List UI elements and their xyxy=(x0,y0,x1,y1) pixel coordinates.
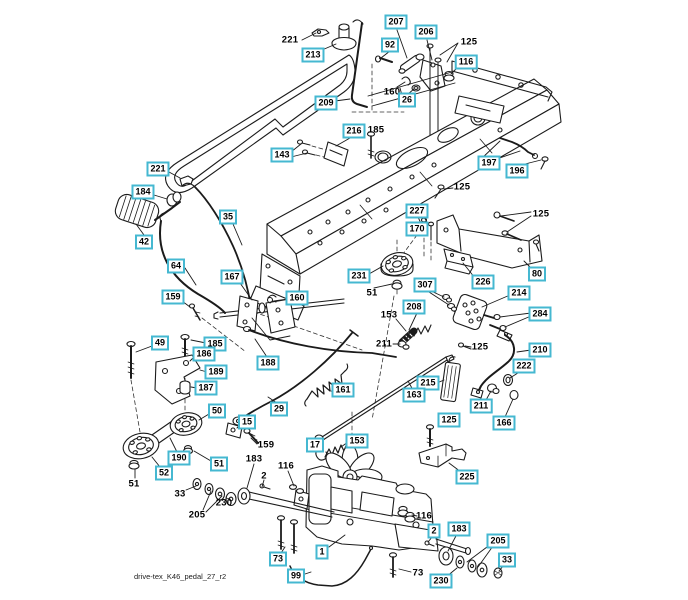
part-label-50[interactable]: 50 xyxy=(208,404,226,419)
part-label-159: 159 xyxy=(258,440,274,450)
part-label-208[interactable]: 208 xyxy=(402,300,425,315)
part-label-186[interactable]: 186 xyxy=(192,347,215,362)
part-label-92[interactable]: 92 xyxy=(381,38,399,53)
part-label-207[interactable]: 207 xyxy=(384,15,407,30)
part-label-184[interactable]: 184 xyxy=(131,185,154,200)
part-label-2: 2 xyxy=(261,471,266,481)
part-label-29[interactable]: 29 xyxy=(270,402,288,417)
part-label-222[interactable]: 222 xyxy=(512,359,535,374)
part-label-213[interactable]: 213 xyxy=(301,48,324,63)
part-label-163[interactable]: 163 xyxy=(402,388,425,403)
part-label-225[interactable]: 225 xyxy=(455,470,478,485)
part-label-185: 185 xyxy=(368,125,384,135)
part-label-227[interactable]: 227 xyxy=(405,204,428,219)
part-label-284[interactable]: 284 xyxy=(528,307,551,322)
part-label-125: 125 xyxy=(472,342,488,352)
part-label-51[interactable]: 51 xyxy=(210,457,228,472)
part-label-190[interactable]: 190 xyxy=(167,451,190,466)
part-label-221: 221 xyxy=(282,35,298,45)
part-label-33: 33 xyxy=(175,489,186,499)
part-label-26[interactable]: 26 xyxy=(398,93,416,108)
part-label-160[interactable]: 160 xyxy=(285,291,308,306)
part-label-1[interactable]: 1 xyxy=(315,545,328,560)
part-label-221[interactable]: 221 xyxy=(146,162,169,177)
part-label-80[interactable]: 80 xyxy=(528,267,546,282)
part-label-116[interactable]: 116 xyxy=(455,55,478,70)
part-label-167[interactable]: 167 xyxy=(220,270,243,285)
part-label-206[interactable]: 206 xyxy=(414,25,437,40)
part-label-116: 116 xyxy=(278,461,294,471)
part-label-196[interactable]: 196 xyxy=(505,164,528,179)
part-label-35[interactable]: 35 xyxy=(219,210,237,225)
part-label-42[interactable]: 42 xyxy=(135,235,153,250)
part-label-231[interactable]: 231 xyxy=(347,269,370,284)
part-label-161[interactable]: 161 xyxy=(331,383,354,398)
part-label-209[interactable]: 209 xyxy=(314,96,337,111)
part-label-205: 205 xyxy=(189,510,205,520)
part-label-170[interactable]: 170 xyxy=(405,222,428,237)
part-label-153[interactable]: 153 xyxy=(345,434,368,449)
part-label-125: 125 xyxy=(461,37,477,47)
part-label-159[interactable]: 159 xyxy=(161,290,184,305)
part-label-183[interactable]: 183 xyxy=(447,522,470,537)
part-label-99[interactable]: 99 xyxy=(287,569,305,584)
part-label-205[interactable]: 205 xyxy=(486,534,509,549)
part-label-52[interactable]: 52 xyxy=(155,466,173,481)
part-label-188[interactable]: 188 xyxy=(256,356,279,371)
part-label-51: 51 xyxy=(367,288,378,298)
part-label-197[interactable]: 197 xyxy=(477,156,500,171)
part-label-230[interactable]: 230 xyxy=(429,574,452,589)
part-label-187[interactable]: 187 xyxy=(194,381,217,396)
part-label-216[interactable]: 216 xyxy=(342,124,365,139)
part-label-2[interactable]: 2 xyxy=(427,524,440,539)
part-label-15[interactable]: 15 xyxy=(238,415,256,430)
part-label-64[interactable]: 64 xyxy=(167,259,185,274)
part-label-143[interactable]: 143 xyxy=(270,148,293,163)
part-label-183: 183 xyxy=(246,454,262,464)
part-label-210[interactable]: 210 xyxy=(528,343,551,358)
figure-footer: drive-tex_K46_pedal_27_r2 xyxy=(134,572,226,581)
part-label-211: 211 xyxy=(376,339,392,349)
part-label-125[interactable]: 125 xyxy=(437,413,460,428)
part-label-214[interactable]: 214 xyxy=(507,286,530,301)
part-label-73[interactable]: 73 xyxy=(269,552,287,567)
parts-diagram-page: 2212132072069212511616026209216185143197… xyxy=(0,0,688,600)
part-label-166[interactable]: 166 xyxy=(492,416,515,431)
part-label-230: 230 xyxy=(216,498,232,508)
part-label-125: 125 xyxy=(454,182,470,192)
part-label-226[interactable]: 226 xyxy=(471,275,494,290)
part-label-51: 51 xyxy=(129,479,140,489)
part-label-211[interactable]: 211 xyxy=(470,399,493,414)
part-label-73: 73 xyxy=(413,568,424,578)
part-label-17[interactable]: 17 xyxy=(306,438,324,453)
part-label-307[interactable]: 307 xyxy=(413,278,436,293)
callout-layer: 2212132072069212511616026209216185143197… xyxy=(0,0,688,600)
part-label-125: 125 xyxy=(533,209,549,219)
part-label-116: 116 xyxy=(416,511,432,521)
part-label-33[interactable]: 33 xyxy=(498,553,516,568)
part-label-153: 153 xyxy=(381,310,397,320)
part-label-49[interactable]: 49 xyxy=(151,336,169,351)
part-label-189[interactable]: 189 xyxy=(204,365,227,380)
